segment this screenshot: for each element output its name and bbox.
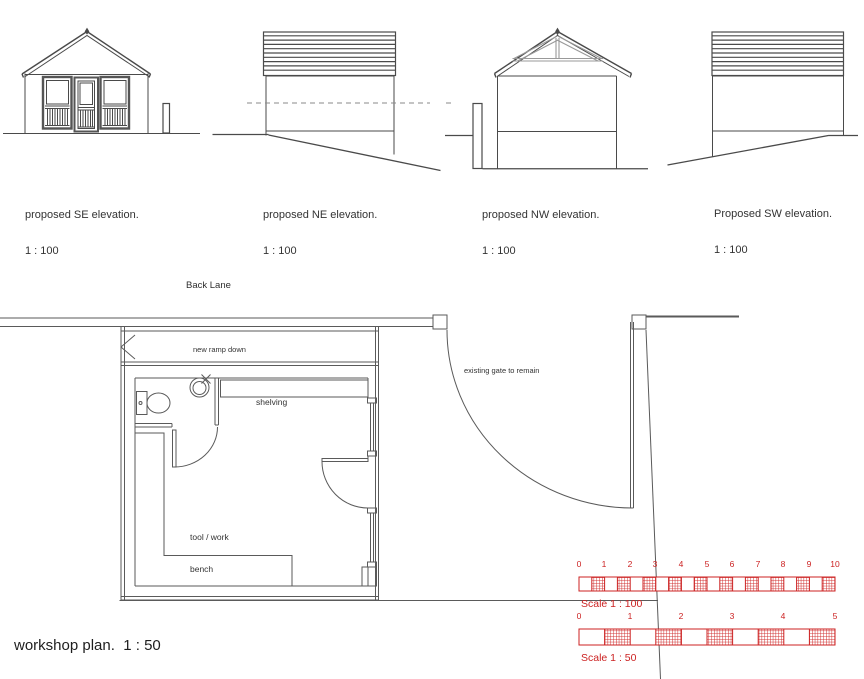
workbench-note: tool / work bench <box>190 511 229 595</box>
ramp-arrow <box>121 335 135 359</box>
workshop-outline <box>121 327 379 601</box>
scale-bar-50 <box>579 629 835 645</box>
elevation-scale: 1 : 100 <box>714 244 832 256</box>
scale-50-tick: 2 <box>673 611 689 621</box>
scale-100-tick: 7 <box>750 559 766 569</box>
window-right <box>101 77 130 129</box>
wc-door <box>173 427 218 467</box>
apex-finial <box>556 29 559 34</box>
gate-swing-arc <box>447 330 633 508</box>
boundary-wall <box>0 315 739 329</box>
ground-line <box>445 136 648 169</box>
nw-elevation-label: proposed NW elevation. 1 : 100 <box>482 185 599 281</box>
walls <box>266 76 394 155</box>
drawing-sheet: proposed SE elevation. 1 : 100 proposed … <box>0 0 864 679</box>
scale-100-tick: 1 <box>596 559 612 569</box>
elevation-title: proposed NW elevation. <box>482 209 599 221</box>
roof-cladding <box>264 32 396 76</box>
scale-50-tick: 4 <box>775 611 791 621</box>
scale-50-tick: 5 <box>827 611 843 621</box>
gate-pier-right <box>632 315 646 329</box>
post <box>163 104 170 134</box>
scale-bar-100 <box>579 577 835 591</box>
ramp <box>121 331 379 359</box>
elevation-scale: 1 : 100 <box>482 245 599 257</box>
ground-line <box>668 136 859 166</box>
elevation-title: Proposed SW elevation. <box>714 208 832 220</box>
toilet <box>137 392 171 415</box>
window-left <box>43 77 72 129</box>
elevation-title: proposed NE elevation. <box>263 209 377 221</box>
scale-100-tick: 5 <box>699 559 715 569</box>
post <box>473 104 482 169</box>
scale-100-tick: 8 <box>775 559 791 569</box>
scale-100-tick: 0 <box>571 559 587 569</box>
scale-50-tick: 1 <box>622 611 638 621</box>
back-lane-label: Back Lane <box>186 280 231 291</box>
wc-partition <box>215 378 219 425</box>
scale-50-caption: Scale 1 : 50 <box>581 652 636 664</box>
scale-50-tick: 0 <box>571 611 587 621</box>
ne-elevation <box>213 32 453 171</box>
ramp-note: new ramp down <box>193 345 246 354</box>
roof <box>22 29 151 78</box>
sw-elevation-label: Proposed SW elevation. 1 : 100 <box>714 184 832 280</box>
elevation-title: proposed SE elevation. <box>25 209 139 221</box>
door <box>75 78 99 132</box>
ground-line <box>213 135 441 171</box>
plan-title: workshop plan. 1 : 50 <box>14 637 161 654</box>
scale-100-tick: 10 <box>827 559 843 569</box>
wc-room <box>135 375 219 468</box>
elevation-scale: 1 : 100 <box>25 245 139 257</box>
existing-gate <box>447 322 634 508</box>
scale-100-tick: 9 <box>801 559 817 569</box>
nw-elevation <box>445 29 648 169</box>
scale-100-tick: 2 <box>622 559 638 569</box>
se-elevation <box>3 29 200 134</box>
boundary-fence-line <box>646 330 661 679</box>
sw-elevation <box>668 32 859 165</box>
roof-cladding <box>712 32 844 76</box>
wc-wall <box>135 424 172 428</box>
scale-100-caption: Scale 1 : 100 <box>581 598 642 610</box>
walls <box>498 76 617 169</box>
apex-finial <box>86 29 89 34</box>
scale-100-tick: 3 <box>647 559 663 569</box>
gate-note: existing gate to remain <box>464 366 539 375</box>
scale-50-tick: 3 <box>724 611 740 621</box>
inner-face <box>135 378 368 586</box>
shelving-note: shelving <box>256 397 287 408</box>
scale-100-tick: 4 <box>673 559 689 569</box>
right-wall-openings <box>322 398 377 567</box>
gate-pier-left <box>433 315 447 329</box>
scale-100-tick: 6 <box>724 559 740 569</box>
gate-leaf <box>631 322 634 508</box>
ne-elevation-label: proposed NE elevation. 1 : 100 <box>263 185 377 281</box>
corner-pier <box>362 567 377 586</box>
door <box>322 459 368 509</box>
roof <box>495 29 632 78</box>
elevation-scale: 1 : 100 <box>263 245 377 257</box>
shelving-outline <box>221 380 369 397</box>
se-elevation-label: proposed SE elevation. 1 : 100 <box>25 185 139 281</box>
